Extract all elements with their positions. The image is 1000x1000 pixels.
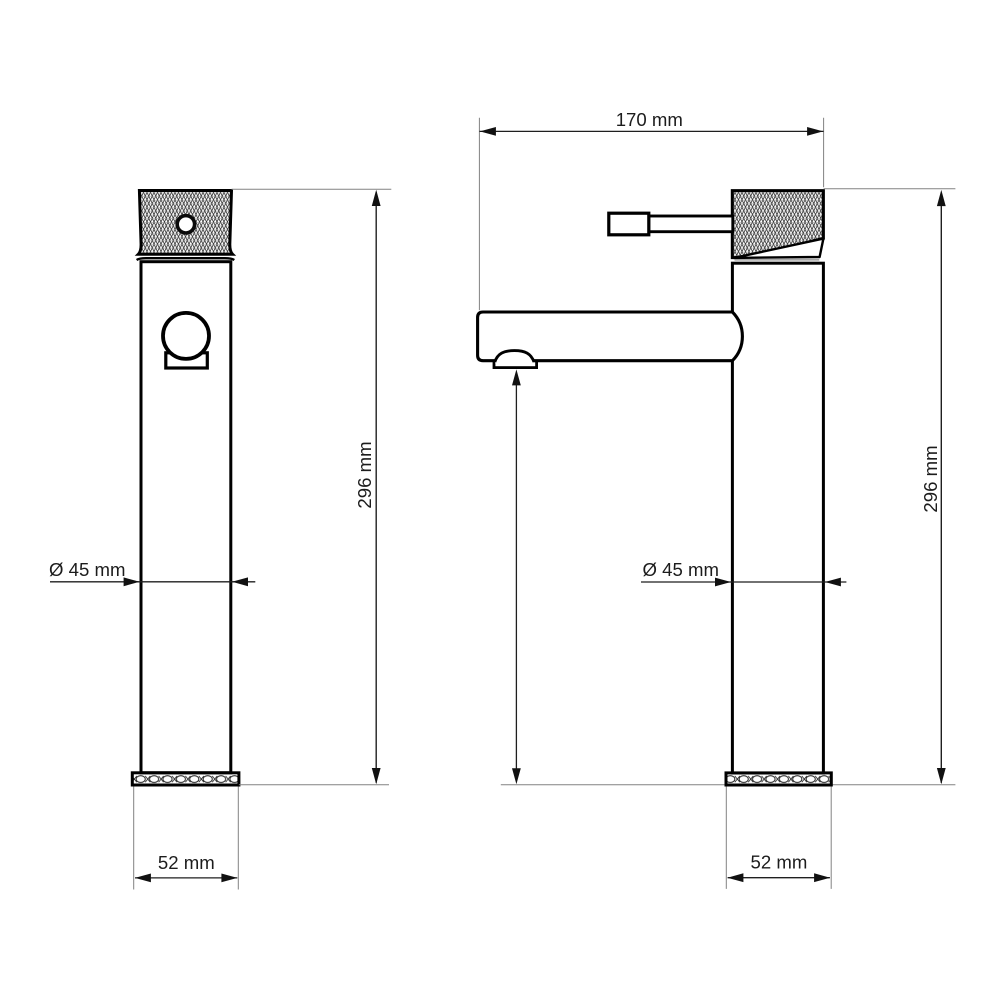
svg-text:296 mm: 296 mm bbox=[354, 441, 375, 508]
svg-text:170 mm: 170 mm bbox=[616, 109, 683, 130]
svg-text:Ø 45 mm: Ø 45 mm bbox=[49, 559, 125, 580]
svg-text:52 mm: 52 mm bbox=[158, 852, 215, 873]
svg-text:296 mm: 296 mm bbox=[920, 445, 941, 512]
svg-text:Ø 45 mm: Ø 45 mm bbox=[643, 559, 719, 580]
svg-text:52 mm: 52 mm bbox=[750, 852, 807, 873]
